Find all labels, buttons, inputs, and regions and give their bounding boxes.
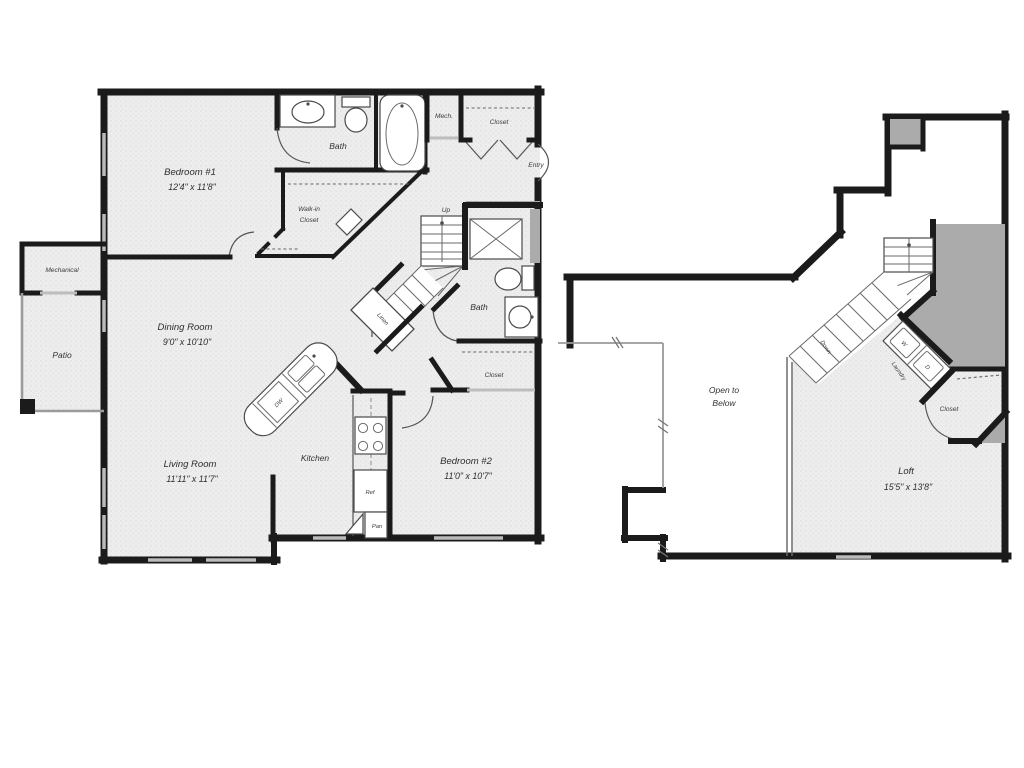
kitchen-label: Kitchen — [301, 453, 330, 463]
loft-dims: 15'5" x 13'8" — [884, 482, 933, 492]
bedroom2-closet-label: Closet — [485, 372, 505, 379]
toilet-tank — [522, 266, 534, 290]
entry-closet-label: Closet — [490, 119, 510, 126]
pan-label: Pan — [372, 524, 382, 530]
up-label: Up — [442, 207, 451, 214]
walkin-label-1: Walk-in — [298, 206, 320, 213]
ref-label: Ref — [365, 490, 375, 496]
bedroom1-label: Bedroom #1 — [164, 167, 216, 178]
faucet — [530, 315, 533, 318]
toilet-tank — [342, 97, 370, 107]
bath2-label: Bath — [470, 302, 488, 312]
open-below-label-1: Open to — [709, 385, 740, 395]
dining-dims: 9'0" x 10'10" — [163, 337, 212, 347]
loft-closet-label: Closet — [940, 406, 960, 413]
floor-plan-page: Bath Mech. Closet Entry — [0, 0, 1024, 768]
bedroom1-dims: 12'4" x 11'8" — [168, 182, 216, 192]
faucet — [306, 102, 309, 105]
walkin-label-2: Closet — [300, 217, 320, 224]
chase-top — [890, 119, 923, 147]
living-label: Living Room — [164, 459, 217, 470]
sink-basin — [509, 306, 531, 328]
toilet-bowl — [495, 268, 521, 290]
dining-label: Dining Room — [158, 322, 213, 333]
entry-label: Entry — [528, 162, 544, 169]
bedroom2-dims: 11'0" x 10'7" — [444, 471, 492, 481]
mechanical-label: Mechanical — [45, 267, 79, 274]
patio-post — [20, 399, 35, 414]
bedroom2-label: Bedroom #2 — [440, 456, 492, 467]
tub-drain — [400, 104, 403, 107]
mech-label: Mech. — [435, 113, 453, 120]
open-below-label-2: Below — [712, 398, 736, 408]
patio-label: Patio — [52, 350, 72, 360]
loft-label: Loft — [898, 466, 914, 477]
bath1-label: Bath — [329, 141, 347, 151]
living-dims: 11'11" x 11'7" — [166, 474, 218, 484]
floor-plan-drawing: Bath Mech. Closet Entry — [0, 0, 1024, 768]
toilet-bowl — [345, 108, 367, 132]
